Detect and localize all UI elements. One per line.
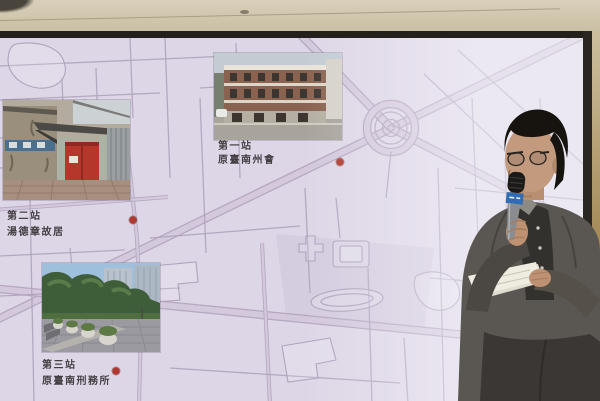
ceiling-shadow-corner — [0, 0, 34, 13]
station-photo-2 — [3, 100, 130, 200]
presenter — [450, 100, 600, 401]
station-1-label: 第一站 — [218, 137, 253, 152]
map-marker-station-2 — [130, 217, 137, 224]
map-marker-station-3 — [113, 368, 120, 375]
station-photo-1 — [214, 53, 342, 140]
station-3-name: 原臺南刑務所 — [42, 372, 111, 387]
station-1-name: 原臺南州會 — [218, 151, 276, 166]
map-marker-station-1 — [337, 159, 344, 166]
conference-room-photo: 第一站 原臺南州會 第二站 湯德章故居 第三站 原臺南刑務所 — [0, 0, 600, 401]
station-photo-3 — [42, 263, 160, 352]
ceiling — [0, 0, 600, 31]
ceiling-mark — [240, 10, 249, 14]
station-2-label: 第二站 — [7, 207, 42, 222]
station-2-name: 湯德章故居 — [7, 223, 65, 238]
screen-top-bezel — [0, 31, 588, 38]
station-3-label: 第三站 — [42, 356, 77, 371]
ceiling-seam — [0, 8, 560, 21]
